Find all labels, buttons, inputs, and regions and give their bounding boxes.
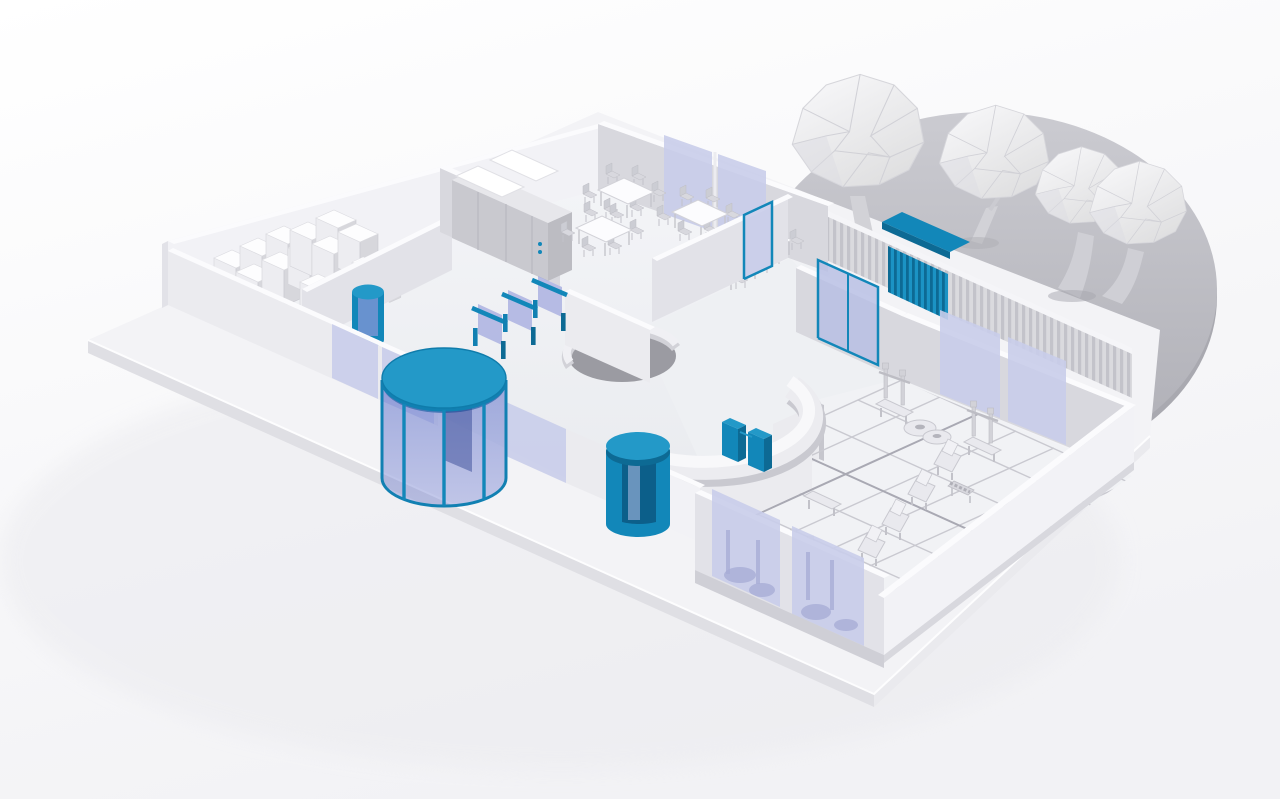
render-canvas [0, 0, 1280, 799]
pedestal-gate [748, 428, 772, 472]
isometric-scene [0, 0, 1280, 799]
revolving-door-large [382, 348, 506, 506]
pedestal-gate [722, 418, 746, 462]
security-portal [606, 432, 670, 537]
portal-roof [606, 432, 670, 460]
